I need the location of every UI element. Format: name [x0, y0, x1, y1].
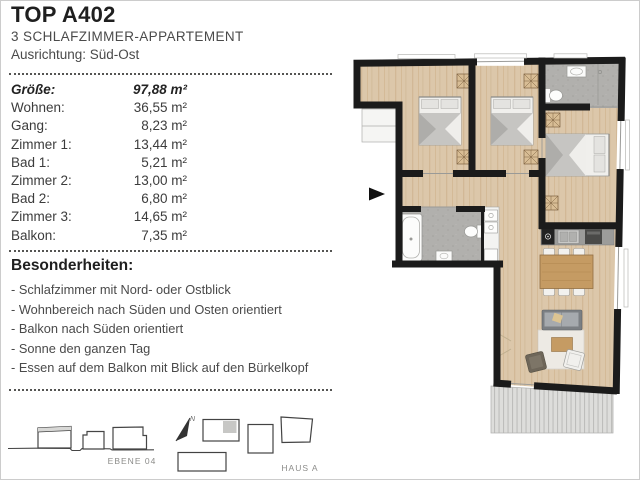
size-value: 97,88 m²: [133, 81, 187, 99]
bed-room2: [491, 97, 533, 145]
size-label: Gang:: [11, 117, 48, 135]
apartment-type-subtitle: 3 SCHLAFZIMMER-APPARTEMENT: [11, 29, 244, 44]
feature-item: Schlafzimmer mit Nord- oder Ostblick: [11, 280, 341, 300]
features-list: Schlafzimmer mit Nord- oder OstblickWohn…: [11, 280, 341, 378]
highlighted-unit-marker: [223, 421, 237, 433]
closet-icon: [544, 196, 558, 210]
size-value: 36,55 m²: [134, 99, 187, 117]
bed-room3: [546, 134, 609, 176]
utility-closet: [483, 207, 499, 264]
svg-text:N: N: [190, 416, 196, 423]
size-value: 8,23 m²: [141, 117, 187, 135]
size-row: Gang:8,23 m²: [11, 117, 187, 135]
dotted-divider: [9, 389, 332, 391]
size-value: 13,44 m²: [134, 136, 187, 154]
size-label: Balkon:: [11, 227, 56, 245]
armchair: [525, 351, 547, 373]
feature-item: Balkon nach Süden orientiert: [11, 319, 341, 339]
size-row: Bad 1:5,21 m²: [11, 154, 187, 172]
closet-icon: [524, 74, 538, 88]
feature-item: Essen auf dem Balkon mit Blick auf den B…: [11, 358, 341, 378]
orientation-text: Ausrichtung: Süd-Ost: [11, 47, 139, 62]
size-row: Bad 2:6,80 m²: [11, 190, 187, 208]
room-sizes-table: Größe:97,88 m²Wohnen:36,55 m²Gang:8,23 m…: [11, 81, 187, 245]
size-label: Bad 2:: [11, 190, 50, 208]
size-row: Wohnen:36,55 m²: [11, 99, 187, 117]
size-value: 13,00 m²: [134, 172, 187, 190]
bed-room1: [419, 97, 461, 145]
size-label: Zimmer 3:: [11, 208, 72, 226]
floor-plan: [341, 53, 640, 438]
size-row: Zimmer 3:14,65 m²: [11, 208, 187, 226]
size-row: Zimmer 2:13,00 m²: [11, 172, 187, 190]
size-row: Balkon:7,35 m²: [11, 227, 187, 245]
north-arrow-icon: N: [176, 416, 196, 441]
feature-item: Sonne den ganzen Tag: [11, 339, 341, 359]
size-label: Wohnen:: [11, 99, 65, 117]
features-heading: Besonderheiten:: [11, 257, 133, 275]
dotted-divider: [9, 73, 332, 75]
size-label: Größe:: [11, 81, 55, 99]
closet-icon: [546, 113, 560, 127]
size-value: 7,35 m²: [141, 227, 187, 245]
building-elevation-sketch: [8, 427, 154, 451]
size-label: Bad 1:: [11, 154, 50, 172]
dining-set: [540, 249, 593, 296]
size-row: Größe:97,88 m²: [11, 81, 187, 99]
entrance-arrow-icon: [369, 188, 385, 201]
size-row: Zimmer 1:13,44 m²: [11, 136, 187, 154]
armchair: [563, 349, 585, 371]
apartment-datasheet-page: TOP A402 3 SCHLAFZIMMER-APPARTEMENT Ausr…: [0, 0, 640, 480]
level-label: EBENE 04: [108, 456, 157, 466]
size-value: 5,21 m²: [141, 154, 187, 172]
house-label: HAUS A: [281, 463, 318, 473]
dotted-divider: [9, 250, 332, 252]
location-sketches: EBENE 04 N HAUS A: [6, 409, 336, 479]
size-value: 14,65 m²: [134, 208, 187, 226]
size-label: Zimmer 2:: [11, 172, 72, 190]
size-label: Zimmer 1:: [11, 136, 72, 154]
size-value: 6,80 m²: [141, 190, 187, 208]
wardrobe: [362, 109, 399, 142]
closet-icon: [524, 150, 538, 164]
kitchen-counter: [541, 228, 614, 245]
page-title: TOP A402: [11, 2, 116, 28]
feature-item: Wohnbereich nach Süden und Osten orienti…: [11, 300, 341, 320]
